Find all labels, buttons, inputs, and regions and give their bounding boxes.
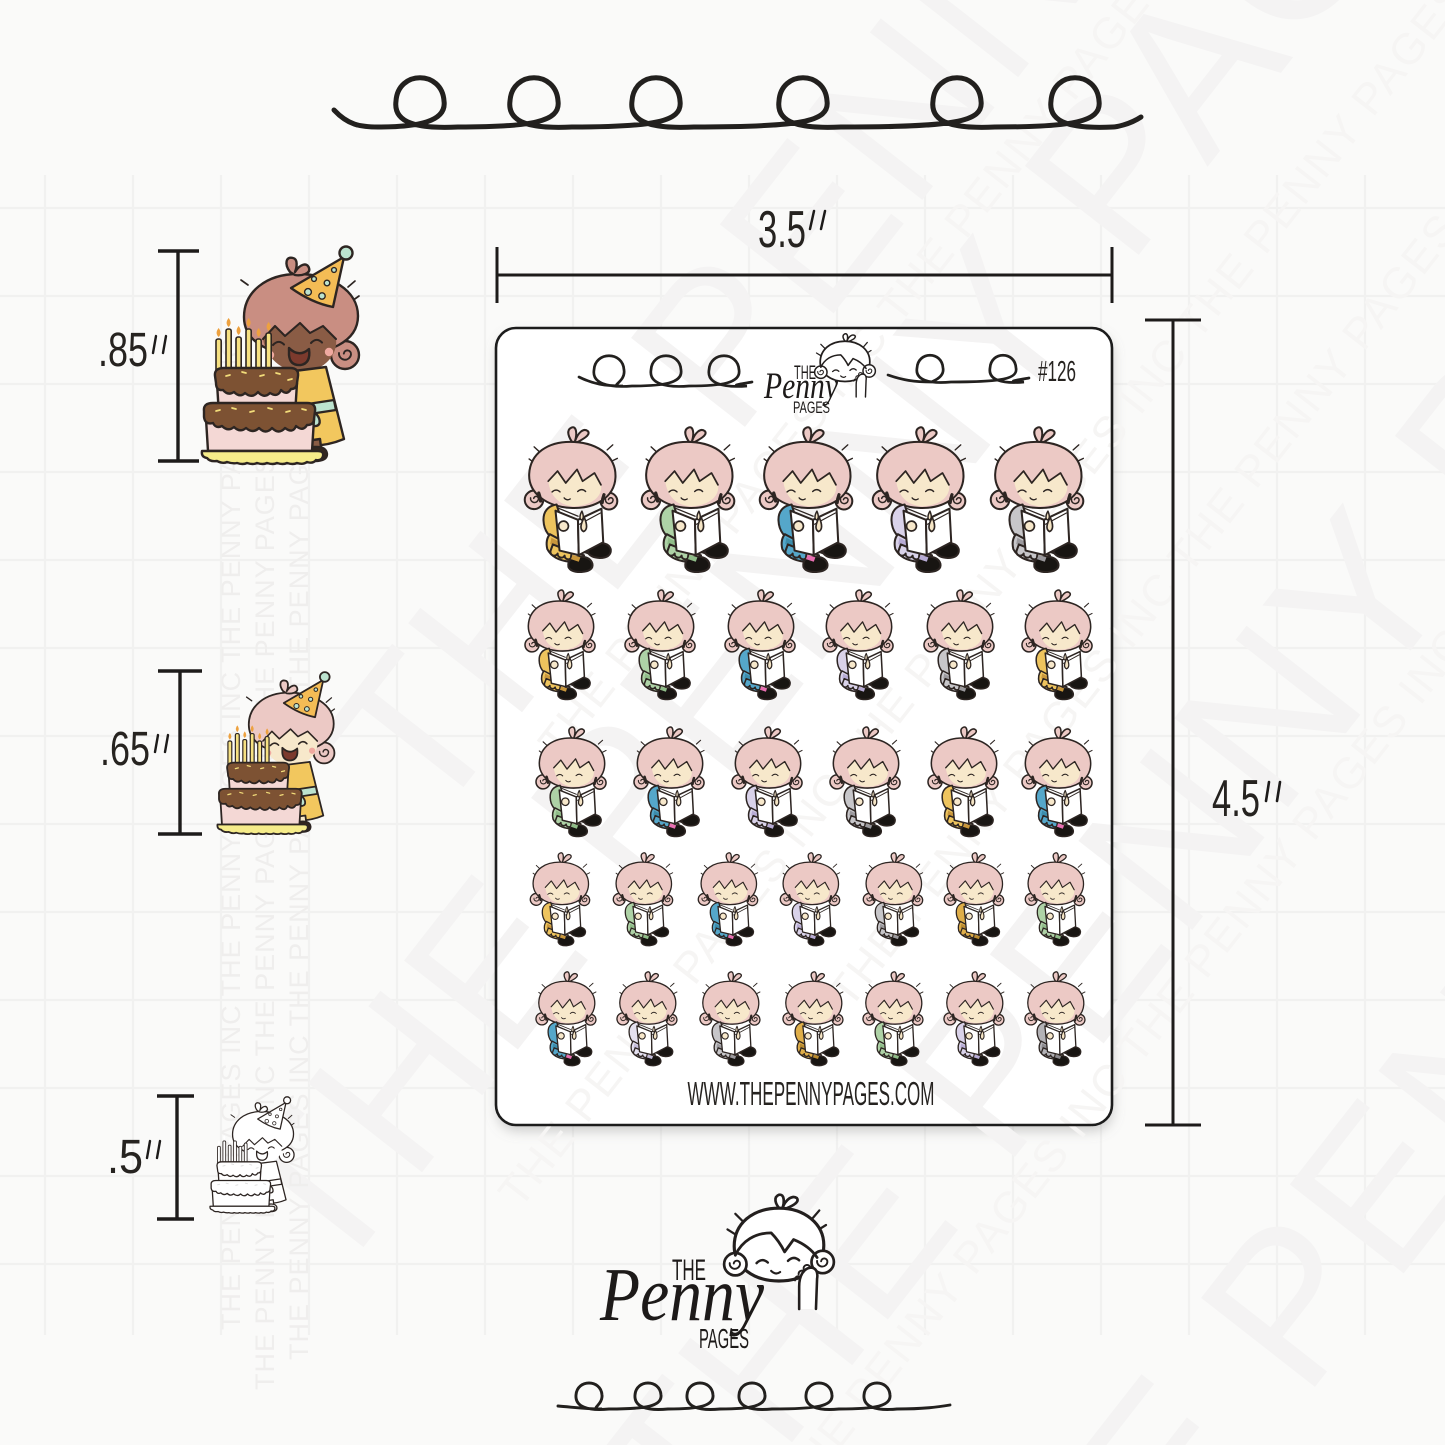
svg-text:WWW.THEPENNYPAGES.COM: WWW.THEPENNYPAGES.COM xyxy=(688,1075,935,1112)
svg-text:THE PENNY PAGES INC THE PENNY: THE PENNY PAGES INC THE PENNY PAGES INC … xyxy=(250,397,280,1390)
svg-text:4.5: 4.5 xyxy=(1212,770,1260,828)
svg-text:.5: .5 xyxy=(107,1131,143,1184)
svg-text:3.5: 3.5 xyxy=(758,201,806,259)
svg-text:.85: .85 xyxy=(98,324,148,377)
svg-text:#126: #126 xyxy=(1038,356,1076,388)
svg-text:PAGES: PAGES xyxy=(699,1323,749,1354)
svg-text:THE PENNY PAGES INC THE PENNY: THE PENNY PAGES INC THE PENNY PAGES INC … xyxy=(284,367,314,1360)
svg-text:PAGES: PAGES xyxy=(793,398,830,417)
svg-text:.65: .65 xyxy=(100,723,150,776)
